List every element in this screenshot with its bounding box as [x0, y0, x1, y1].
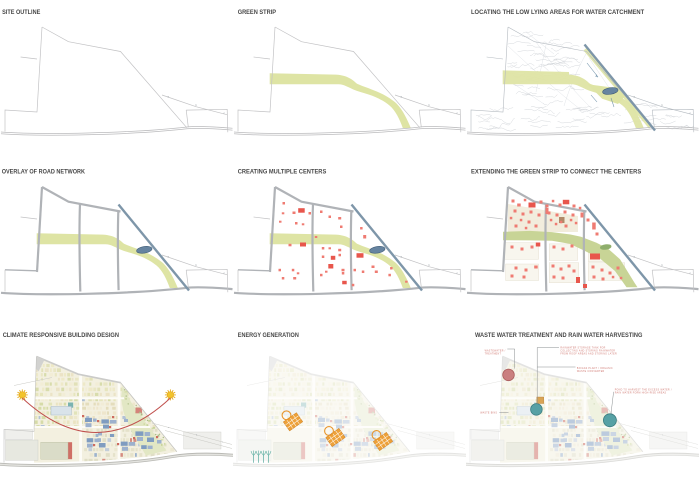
svg-text:EXTENDING THE GREEN STRIP TO C: EXTENDING THE GREEN STRIP TO CONNECT THE…	[471, 168, 642, 175]
svg-text:FROM ROOF AREAS AND STORING LA: FROM ROOF AREAS AND STORING LATER	[560, 353, 617, 356]
svg-text:BIOGAS PLANT / ORGANIC: BIOGAS PLANT / ORGANIC	[577, 367, 613, 370]
svg-text:LOCATING THE LOW LYING AREAS F: LOCATING THE LOW LYING AREAS FOR WATER C…	[471, 9, 644, 16]
svg-text:CREATING MULTIPLE CENTERS: CREATING MULTIPLE CENTERS	[238, 168, 327, 175]
svg-text:WASTE BINS: WASTE BINS	[480, 412, 497, 415]
svg-text:TREATMENT: TREATMENT	[485, 352, 502, 355]
svg-text:ENERGY GENERATION: ENERGY GENERATION	[238, 332, 299, 339]
svg-text:CLIMATE RESPONSIVE BUILDING DE: CLIMATE RESPONSIVE BUILDING DESIGN	[3, 332, 120, 339]
svg-text:COLLECTING AND STORING RAINWAT: COLLECTING AND STORING RAINWATER	[560, 350, 615, 353]
svg-text:RAINWATER STORAGE TANK FOR: RAINWATER STORAGE TANK FOR	[560, 347, 605, 350]
svg-text:WASTE CONVERTER: WASTE CONVERTER	[577, 370, 605, 373]
svg-text:WASTE WATER TREATMENT AND RAIN: WASTE WATER TREATMENT AND RAIN WATER HAR…	[475, 332, 642, 339]
svg-text:OVERLAY OF ROAD NETWORK: OVERLAY OF ROAD NETWORK	[2, 168, 86, 175]
svg-text:RAIN WATER FORM HIGH-RISE AREA: RAIN WATER FORM HIGH-RISE AREAS	[615, 392, 667, 395]
svg-text:WASTEWATER /: WASTEWATER /	[485, 349, 506, 352]
svg-text:SITE OUTLINE: SITE OUTLINE	[2, 9, 41, 16]
svg-text:GREEN STRIP: GREEN STRIP	[238, 9, 277, 16]
svg-text:POND TO HARVEST THE EXCESS WAT: POND TO HARVEST THE EXCESS WATER /	[615, 389, 672, 392]
